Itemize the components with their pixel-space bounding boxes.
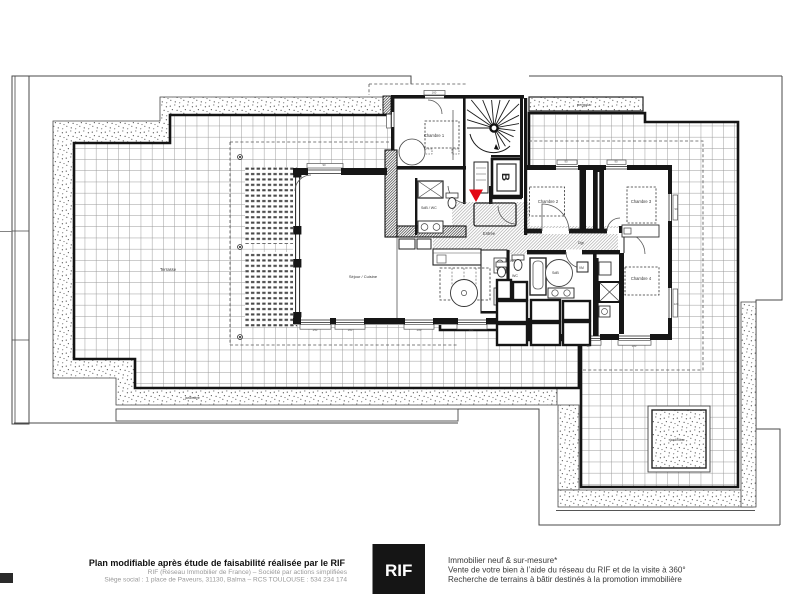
svg-text:Chambre 2: Chambre 2 — [538, 199, 559, 204]
svg-text:180: 180 — [469, 328, 474, 332]
svg-text:200: 200 — [417, 328, 422, 332]
svg-text:Séjour / Cuisine: Séjour / Cuisine — [349, 274, 378, 279]
svg-text:SdB / WC: SdB / WC — [421, 206, 437, 210]
svg-text:B: B — [499, 173, 511, 181]
svg-text:SdB: SdB — [552, 271, 559, 275]
svg-text:90: 90 — [614, 160, 618, 164]
svg-text:Vente de votre bien à l’aide d: Vente de votre bien à l’aide du réseau d… — [448, 566, 686, 575]
svg-text:Chambre 4: Chambre 4 — [631, 276, 652, 281]
svg-text:Recherche de terrains à bâtir: Recherche de terrains à bâtir destinés à… — [448, 575, 682, 584]
svg-text:120: 120 — [674, 302, 679, 306]
svg-text:Terrasse: Terrasse — [160, 267, 177, 272]
svg-text:Chambre 1: Chambre 1 — [424, 133, 445, 138]
svg-text:jardinière: jardinière — [184, 396, 200, 400]
svg-text:160: 160 — [348, 328, 353, 332]
svg-text:Dgt: Dgt — [578, 241, 584, 245]
svg-text:120: 120 — [632, 344, 637, 348]
svg-text:Entrée: Entrée — [483, 231, 496, 236]
svg-text:90: 90 — [322, 163, 326, 167]
svg-text:RIF: RIF — [385, 561, 412, 580]
svg-text:Immobilier neuf & sur-mesure*: Immobilier neuf & sur-mesure* — [448, 556, 558, 565]
svg-text:160: 160 — [432, 91, 437, 95]
svg-text:WC: WC — [512, 274, 518, 278]
svg-text:WC: WC — [510, 259, 516, 263]
svg-text:RIF (Réseau Immobilier de Fran: RIF (Réseau Immobilier de France) – Soci… — [148, 569, 348, 576]
svg-text:pergola: pergola — [577, 102, 591, 107]
svg-text:jardinière: jardinière — [669, 438, 685, 442]
svg-text:250: 250 — [313, 328, 318, 332]
svg-text:Chambre 3: Chambre 3 — [631, 199, 652, 204]
svg-text:VM: VM — [579, 266, 584, 270]
svg-text:90: 90 — [586, 344, 590, 348]
svg-text:90: 90 — [674, 207, 678, 211]
svg-text:Plan modifiable après étude de: Plan modifiable après étude de faisabili… — [89, 558, 346, 568]
svg-text:90: 90 — [564, 160, 568, 164]
svg-text:Siège social : 1 place de Pave: Siège social : 1 place de Paveurs, 31130… — [104, 577, 347, 584]
